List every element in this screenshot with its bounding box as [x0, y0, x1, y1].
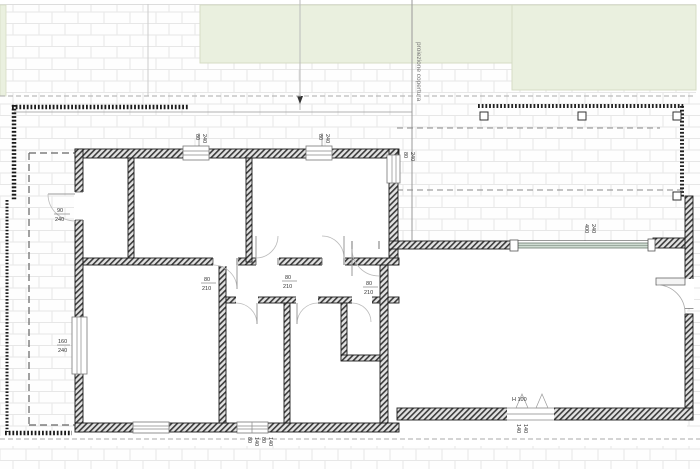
svg-text:80: 80: [260, 437, 266, 443]
svg-text:210: 210: [283, 284, 292, 290]
svg-text:240: 240: [590, 224, 596, 233]
svg-text:210: 210: [364, 290, 373, 296]
svg-text:240: 240: [201, 134, 207, 143]
svg-text:140: 140: [522, 424, 528, 433]
svg-text:80: 80: [366, 281, 372, 287]
svg-text:240: 240: [58, 348, 67, 354]
svg-text:240: 240: [409, 152, 415, 161]
svg-text:400: 400: [583, 224, 589, 233]
svg-text:80: 80: [285, 275, 291, 281]
svg-text:140: 140: [253, 437, 259, 446]
svg-text:H 100: H 100: [512, 397, 527, 403]
svg-text:80: 80: [246, 437, 252, 443]
svg-text:240: 240: [324, 134, 330, 143]
svg-text:210: 210: [202, 286, 211, 292]
svg-text:proiezione copertura: proiezione copertura: [415, 42, 422, 102]
svg-text:140: 140: [267, 437, 273, 446]
svg-text:90: 90: [57, 208, 63, 214]
svg-text:80: 80: [402, 152, 408, 158]
svg-text:80: 80: [204, 277, 210, 283]
svg-text:160: 160: [58, 339, 67, 345]
svg-text:140: 140: [515, 424, 521, 433]
svg-text:240: 240: [55, 217, 64, 223]
